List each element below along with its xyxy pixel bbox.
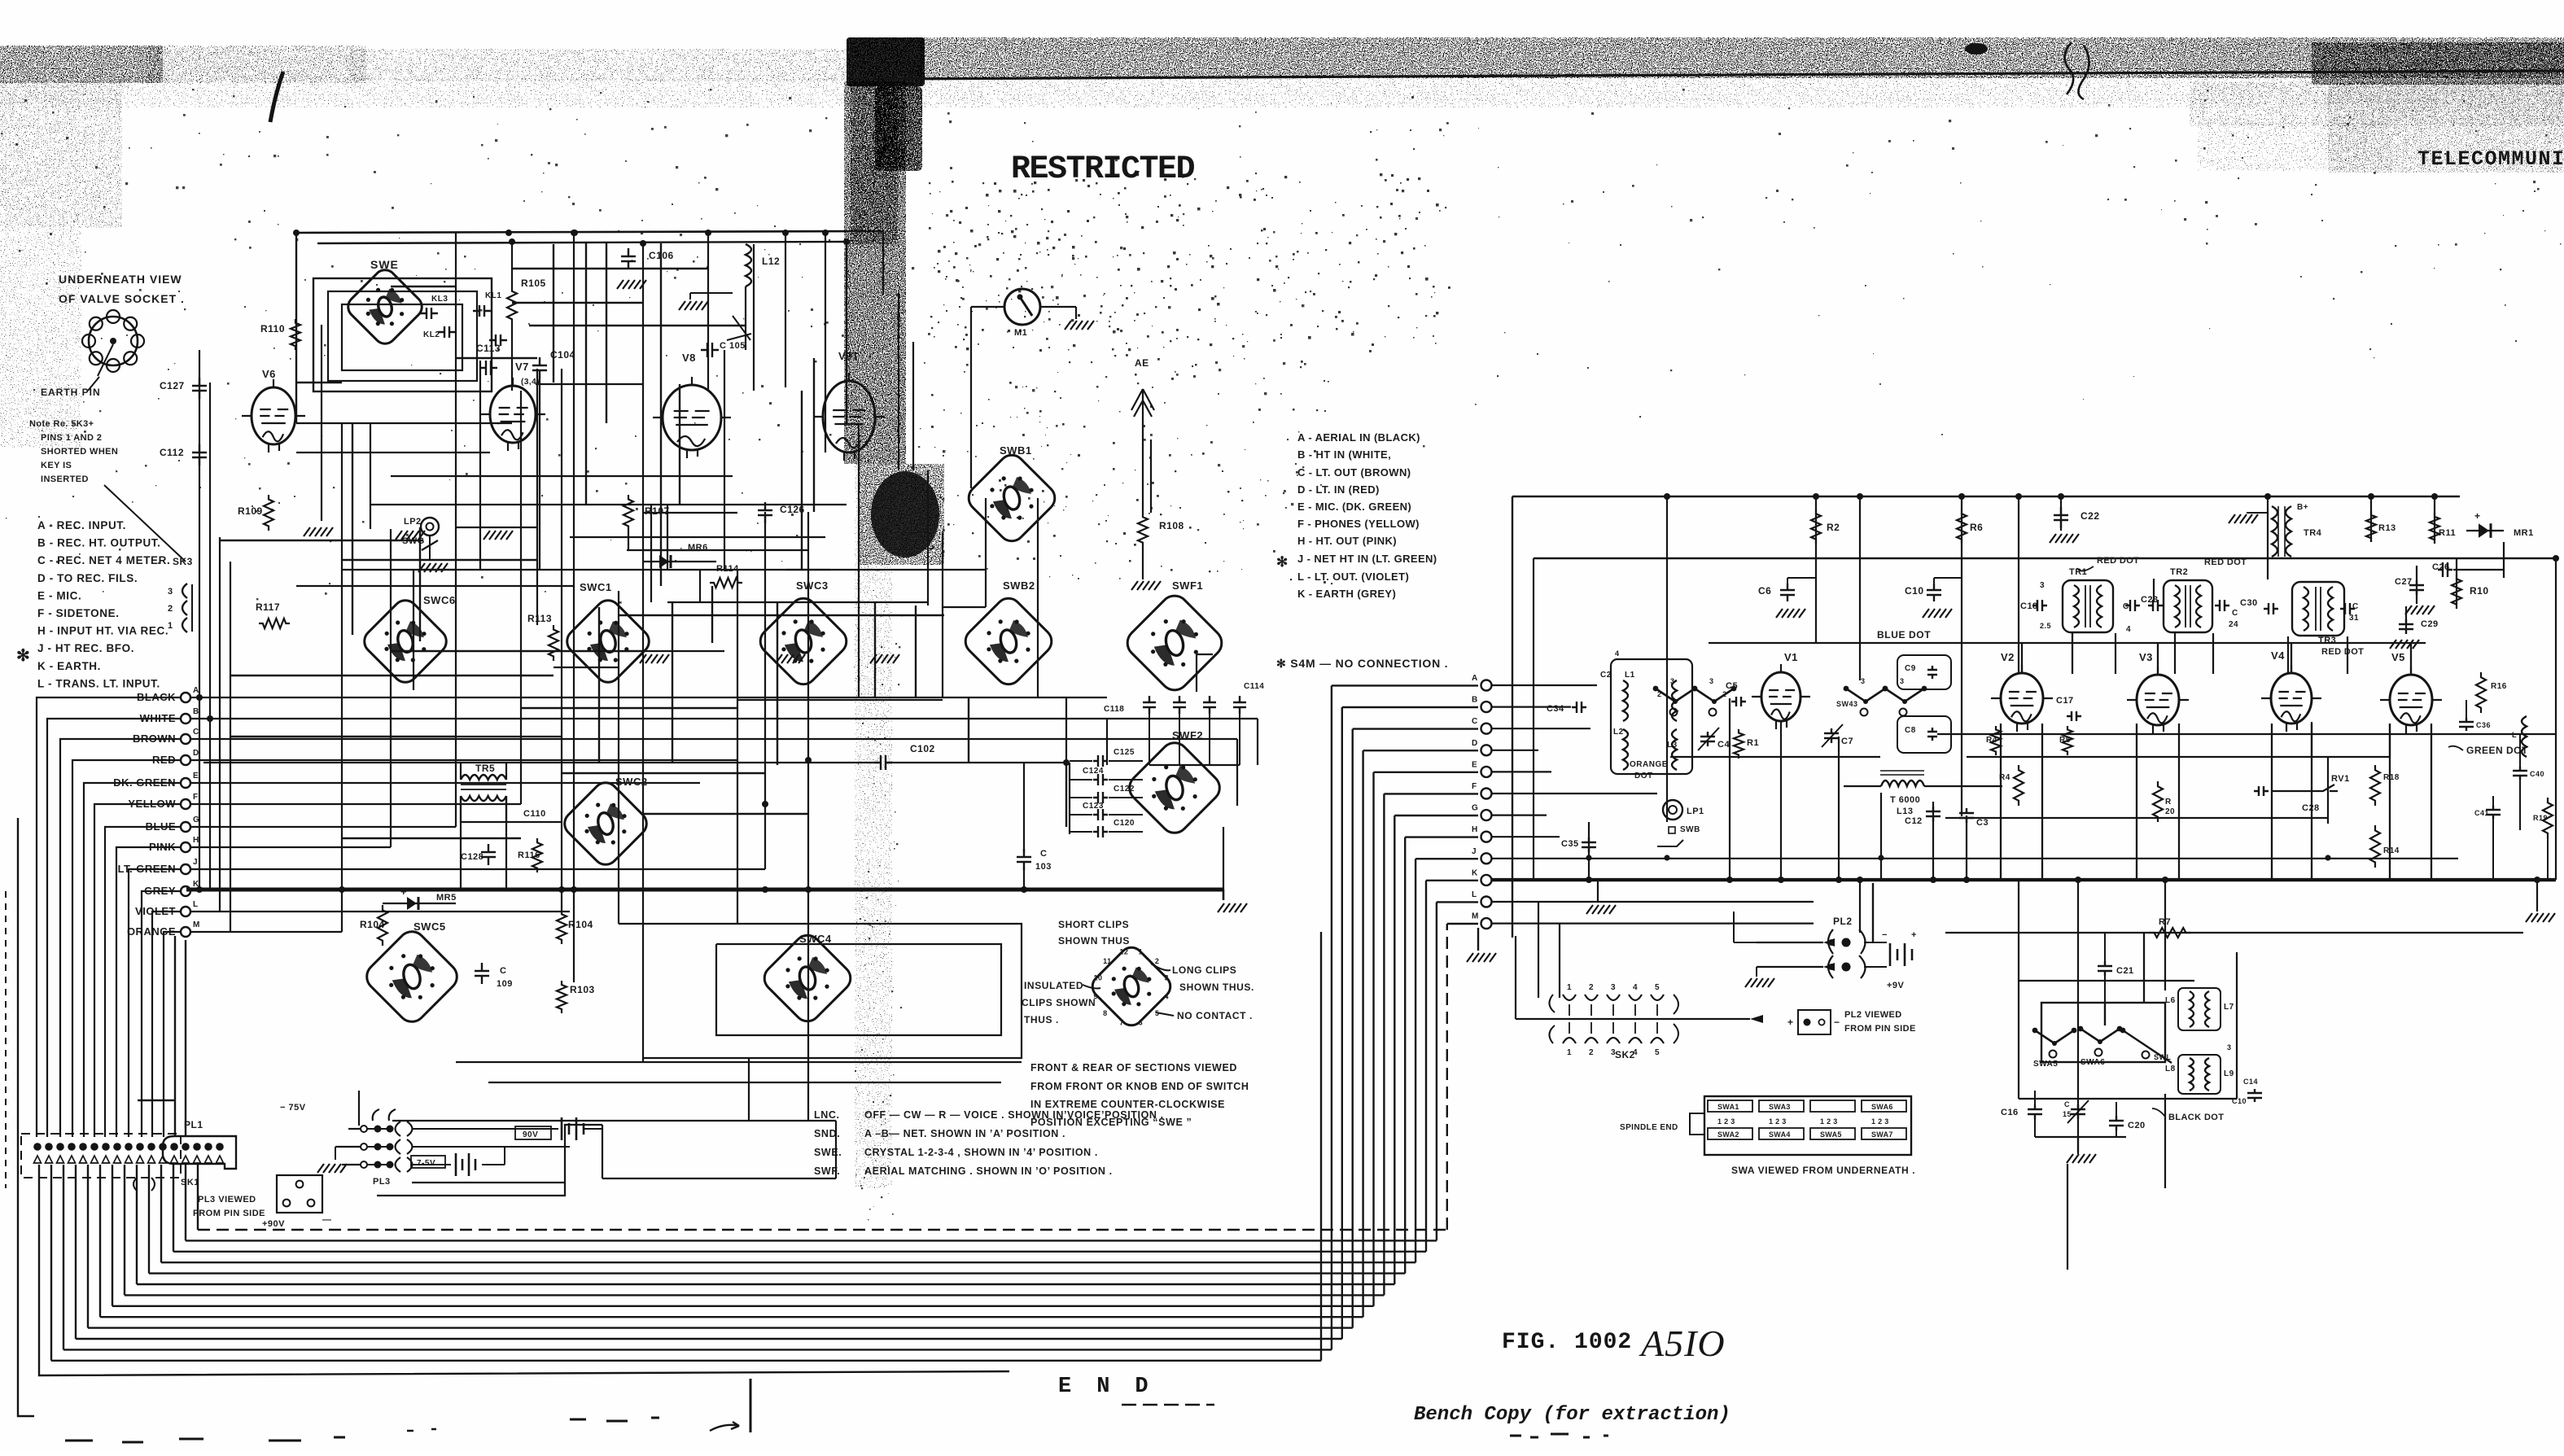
svg-text:−: − [1882, 930, 1888, 940]
svg-text:T 6000: T 6000 [1890, 795, 1920, 805]
svg-text:LONG CLIPS: LONG CLIPS [1172, 964, 1236, 976]
svg-text:H: H [193, 836, 199, 845]
svg-text:SK3: SK3 [173, 556, 193, 567]
svg-text:C - LT. OUT (BROWN): C - LT. OUT (BROWN) [1297, 466, 1411, 479]
svg-text:C29: C29 [2421, 619, 2439, 629]
svg-text:G: G [1472, 804, 1478, 813]
svg-text:R11: R11 [2439, 528, 2456, 538]
svg-text:SWB: SWB [1680, 825, 1700, 834]
svg-text:TR3: TR3 [2318, 636, 2336, 645]
svg-text:C30: C30 [2240, 598, 2258, 608]
svg-text:M: M [1472, 912, 1479, 921]
svg-text:SWB2: SWB2 [1003, 579, 1035, 592]
svg-text:LP2: LP2 [404, 517, 422, 527]
svg-text:2: 2 [168, 604, 173, 614]
svg-text:D: D [193, 749, 199, 758]
svg-text:C: C [1040, 849, 1047, 859]
svg-text:2: 2 [1589, 983, 1594, 992]
svg-text:V4: V4 [2271, 649, 2285, 662]
svg-text:SWC2: SWC2 [615, 776, 648, 788]
svg-text:J - HT REC. BFO.: J - HT REC. BFO. [37, 642, 134, 654]
svg-text:7: 7 [1119, 1018, 1124, 1026]
svg-text:31: 31 [2349, 614, 2359, 623]
svg-text:L12: L12 [762, 256, 780, 267]
svg-text:1: 1 [1567, 1048, 1572, 1057]
svg-text:DOT: DOT [1634, 772, 1653, 780]
svg-text:R6: R6 [1970, 522, 1983, 533]
svg-text:F: F [193, 793, 199, 802]
svg-text:1: 1 [1139, 948, 1144, 956]
svg-text:C: C [2232, 609, 2238, 618]
svg-text:MR5: MR5 [436, 893, 457, 903]
svg-text:5: 5 [1655, 983, 1660, 992]
svg-text:B - REC. HT. OUTPUT.: B - REC. HT. OUTPUT. [37, 537, 161, 549]
svg-text:L7: L7 [2224, 1003, 2234, 1012]
svg-text:+: + [400, 885, 407, 898]
svg-text:C34: C34 [1547, 704, 1564, 714]
svg-text:MR6: MR6 [688, 543, 708, 553]
svg-text:C22: C22 [2081, 510, 2100, 522]
svg-text:3: 3 [168, 587, 173, 597]
svg-text:11: 11 [1103, 957, 1112, 965]
svg-text:3: 3 [1611, 983, 1616, 992]
svg-text:C4: C4 [1717, 740, 1730, 750]
svg-text:B: B [193, 707, 199, 716]
svg-text:C122: C122 [1114, 785, 1135, 794]
svg-text:− 75V: − 75V [280, 1103, 306, 1113]
svg-text:3: 3 [1164, 973, 1169, 982]
svg-text:F - SIDETONE.: F - SIDETONE. [37, 607, 120, 619]
svg-text:R16: R16 [2491, 682, 2507, 691]
svg-text:R108: R108 [1159, 520, 1184, 531]
svg-text:4: 4 [2126, 625, 2131, 634]
svg-text:+90V: +90V [262, 1219, 285, 1229]
svg-text:✻: ✻ [16, 647, 30, 665]
svg-text:SWA4: SWA4 [1769, 1130, 1791, 1139]
svg-text:SWC3: SWC3 [796, 579, 829, 592]
svg-text:OF VALVE SOCKET .: OF VALVE SOCKET . [59, 292, 185, 305]
svg-text:E - MIC. (DK. GREEN): E - MIC. (DK. GREEN) [1297, 501, 1411, 513]
svg-text:R114: R114 [716, 564, 739, 574]
svg-text:CRYSTAL 1-2-3-4 , SHOWN IN: CRYSTAL 1-2-3-4 , SHOWN IN ’4’ POSITION … [864, 1147, 1098, 1158]
svg-text:C35: C35 [1561, 839, 1579, 849]
svg-text:OFF — CW — R — VOICE . SHOWN: OFF — CW — R — VOICE . SHOWN IN’VOICE’PO… [864, 1109, 1164, 1121]
svg-text:PL3: PL3 [373, 1177, 391, 1187]
svg-text:KL3: KL3 [431, 295, 448, 304]
svg-text:E: E [193, 772, 199, 780]
svg-text:C: C [2352, 602, 2359, 611]
svg-text:L - LT. OUT. (VIOLET): L - LT. OUT. (VIOLET) [1297, 571, 1409, 583]
svg-text:E - MIC.: E - MIC. [37, 589, 81, 601]
svg-text:K: K [1472, 868, 1478, 877]
svg-text:2: 2 [1155, 957, 1160, 965]
svg-text:L6: L6 [2165, 996, 2176, 1005]
svg-text:FROM FRONT OR KNOB END OF SW: FROM FRONT OR KNOB END OF SWITCH [1030, 1081, 1249, 1092]
svg-text:PINS 1 AND 2: PINS 1 AND 2 [41, 433, 102, 443]
svg-text:R2: R2 [1827, 522, 1840, 533]
svg-text:C20: C20 [2128, 1121, 2146, 1130]
svg-text:D - TO REC. FILS.: D - TO REC. FILS. [37, 572, 138, 584]
svg-text:4: 4 [1633, 983, 1638, 992]
svg-text:C126: C126 [780, 504, 805, 515]
svg-text:1 2 3: 1 2 3 [1820, 1117, 1838, 1126]
svg-text:RED DOT: RED DOT [2321, 647, 2364, 657]
svg-text:BLUE DOT: BLUE DOT [1877, 629, 1931, 641]
svg-text:TR4: TR4 [2304, 528, 2322, 538]
svg-text:TR5: TR5 [475, 763, 495, 774]
svg-text:F - PHONES (YELLOW): F - PHONES (YELLOW) [1297, 518, 1420, 530]
svg-text:IN EXTREME COUNTER-CLOCKWISE: IN EXTREME COUNTER-CLOCKWISE [1030, 1099, 1225, 1110]
svg-text:A - AERIAL IN (BLACK): A - AERIAL IN (BLACK) [1297, 431, 1420, 444]
svg-text:✻ S4M — NO CONNECTION .: ✻ S4M — NO CONNECTION . [1276, 657, 1448, 670]
svg-text:V9T: V9T [838, 350, 859, 362]
svg-text:INSERTED: INSERTED [41, 474, 89, 484]
svg-text:R103: R103 [570, 984, 595, 995]
svg-text:FROM PIN SIDE: FROM PIN SIDE [193, 1209, 265, 1218]
svg-text:A - REC. INPUT.: A - REC. INPUT. [37, 519, 126, 531]
svg-text:24: 24 [2229, 620, 2238, 629]
svg-text:V5: V5 [2391, 651, 2405, 663]
svg-text:C14: C14 [2243, 1078, 2258, 1086]
svg-text:C7: C7 [1841, 737, 1853, 746]
svg-text:E: E [1472, 760, 1477, 769]
svg-text:V1: V1 [1784, 651, 1798, 663]
svg-text:R104: R104 [360, 919, 385, 930]
svg-text:J: J [193, 858, 198, 867]
svg-text:H - INPUT HT. VIA REC.: H - INPUT HT. VIA REC. [37, 625, 168, 637]
svg-text:R104: R104 [568, 919, 593, 930]
svg-text:+: + [2474, 510, 2481, 522]
svg-text:3: 3 [1861, 677, 1866, 685]
svg-text:RED DOT: RED DOT [2204, 557, 2247, 567]
svg-text:SWA6: SWA6 [1871, 1103, 1893, 1111]
svg-text:TR2: TR2 [2170, 567, 2188, 577]
svg-text:UNDERNEATH VIEW: UNDERNEATH VIEW [59, 273, 182, 286]
svg-text:7-5V: 7-5V [417, 1159, 435, 1168]
svg-text:L1: L1 [1625, 671, 1635, 680]
svg-text:SWA5: SWA5 [1820, 1130, 1842, 1139]
svg-text:C2: C2 [1600, 671, 1612, 680]
svg-text:V2: V2 [2001, 651, 2015, 663]
svg-text:L13: L13 [1897, 807, 1913, 816]
svg-text:1: 1 [1567, 983, 1572, 992]
svg-text:C17: C17 [2056, 696, 2074, 706]
svg-text:3: 3 [1709, 677, 1714, 685]
svg-text:C: C [1472, 717, 1478, 726]
svg-text:3: 3 [2040, 581, 2045, 590]
svg-text:LNC.: LNC. [814, 1109, 840, 1121]
svg-text:R: R [2165, 798, 2172, 807]
svg-text:6: 6 [1139, 1018, 1144, 1026]
svg-text:4: 4 [1633, 1048, 1638, 1057]
svg-text:SWF1: SWF1 [1172, 579, 1203, 592]
svg-text:J - NET HT IN (LT. GREEN): J - NET HT IN (LT. GREEN) [1297, 553, 1437, 565]
svg-text:1 2 3: 1 2 3 [1717, 1117, 1735, 1126]
svg-text:R1: R1 [1747, 738, 1759, 748]
svg-text:FRONT & REAR OF SECTIONS VIEW: FRONT & REAR OF SECTIONS VIEWED [1030, 1062, 1237, 1073]
svg-text:A –B— NET. SHOWN IN ’A’ PO: A –B— NET. SHOWN IN ’A’ POSITION . [864, 1128, 1065, 1139]
svg-text:H: H [1472, 825, 1478, 834]
svg-text:KEY IS: KEY IS [41, 461, 72, 470]
svg-text:C110: C110 [523, 809, 546, 819]
svg-text:SWA7: SWA7 [1871, 1130, 1893, 1139]
svg-text:R105: R105 [521, 278, 546, 289]
svg-text:C: C [2123, 602, 2129, 611]
svg-text:F: F [1472, 782, 1477, 791]
svg-text:SK1: SK1 [181, 1178, 199, 1187]
svg-text:L3: L3 [1667, 741, 1678, 750]
svg-text:FIG. 1002: FIG. 1002 [1502, 1330, 1632, 1355]
svg-text:SWA3: SWA3 [1769, 1103, 1791, 1111]
svg-text:R117: R117 [256, 601, 280, 613]
svg-text:R14: R14 [2383, 846, 2400, 855]
svg-text:3: 3 [1611, 1048, 1616, 1057]
svg-text:C40: C40 [2530, 770, 2544, 778]
svg-text:V6: V6 [262, 368, 276, 380]
svg-text:C28: C28 [2302, 803, 2320, 813]
svg-text:END: END [1058, 1375, 1174, 1399]
svg-text:R113: R113 [527, 613, 552, 624]
svg-text:SHOWN THUS: SHOWN THUS [1058, 935, 1130, 947]
svg-text:PL2: PL2 [1833, 916, 1853, 927]
svg-text:C114: C114 [1244, 682, 1264, 691]
svg-text:C120: C120 [1114, 819, 1135, 828]
svg-text:V8: V8 [682, 352, 696, 364]
svg-text:C36: C36 [2476, 721, 2491, 729]
svg-text:C8: C8 [1905, 726, 1916, 735]
svg-text:KL2: KL2 [423, 330, 440, 339]
svg-text:R10: R10 [2470, 585, 2489, 597]
svg-text:R19: R19 [2533, 814, 2548, 822]
svg-text:SWC5: SWC5 [413, 920, 446, 933]
svg-text:R18: R18 [2383, 773, 2400, 782]
svg-text:2.5: 2.5 [2040, 622, 2051, 630]
svg-text:FROM PIN SIDE: FROM PIN SIDE [1844, 1024, 1916, 1034]
svg-text:AE: AE [1135, 357, 1149, 369]
svg-text:C102: C102 [910, 743, 935, 754]
svg-text:R109: R109 [238, 505, 263, 517]
svg-text:C41: C41 [2474, 809, 2489, 817]
svg-text:SWA2: SWA2 [1717, 1130, 1739, 1139]
svg-text:PL3 VIEWED: PL3 VIEWED [198, 1195, 256, 1205]
svg-text:Note Re. 5K3+: Note Re. 5K3+ [29, 419, 94, 429]
svg-text:—: — [322, 1215, 332, 1225]
svg-text:V7: V7 [515, 361, 529, 373]
svg-text:C118: C118 [1104, 705, 1124, 714]
svg-text:C9: C9 [1905, 664, 1916, 673]
svg-text:L2: L2 [1613, 728, 1624, 737]
svg-text:A5IO: A5IO [1639, 1323, 1726, 1364]
svg-text:INSULATED: INSULATED [1024, 980, 1083, 991]
svg-text:C10: C10 [1905, 585, 1924, 597]
svg-text:SWA VIEWED FROM UNDERNEATH: SWA VIEWED FROM UNDERNEATH . [1731, 1165, 1915, 1176]
svg-text:B+: B+ [2297, 503, 2308, 512]
svg-text:C - REC. NET 4 METER.: C - REC. NET 4 METER. [37, 554, 170, 566]
svg-text:K - EARTH.: K - EARTH. [37, 660, 101, 672]
svg-text:L: L [193, 900, 199, 909]
svg-text:SHORT CLIPS: SHORT CLIPS [1058, 919, 1129, 930]
svg-text:SW43: SW43 [1836, 700, 1858, 708]
svg-text:Bench Copy (for extraction): Bench Copy (for extraction) [1414, 1404, 1730, 1426]
svg-text:CLIPS SHOWN: CLIPS SHOWN [1022, 997, 1096, 1008]
svg-text:5: 5 [1655, 1048, 1660, 1057]
svg-text:2: 2 [1657, 690, 1662, 698]
svg-text:12: 12 [1119, 948, 1128, 956]
svg-text:+: + [1911, 930, 1917, 940]
svg-text:15: 15 [2063, 1110, 2072, 1118]
svg-text:GREEN DOT: GREEN DOT [2466, 745, 2528, 756]
svg-text:C12: C12 [1905, 816, 1923, 826]
svg-text:1: 1 [168, 621, 173, 631]
svg-text:L8: L8 [2165, 1065, 2176, 1073]
svg-text:B: B [1472, 696, 1478, 705]
svg-text:SWC1: SWC1 [580, 581, 612, 593]
svg-text:LP1: LP1 [1687, 807, 1704, 816]
svg-text:3: 3 [2227, 1043, 2232, 1052]
svg-text:3: 3 [1670, 677, 1675, 685]
svg-text:TELECOMMUNI: TELECOMMUNI [2417, 147, 2564, 171]
svg-text:R107: R107 [645, 505, 670, 517]
svg-text:C16: C16 [2001, 1108, 2019, 1117]
svg-text:C5: C5 [1726, 681, 1738, 691]
svg-text:C113: C113 [476, 343, 501, 354]
svg-text:SHOWN THUS.: SHOWN THUS. [1179, 982, 1254, 993]
svg-text:103: 103 [1035, 862, 1052, 872]
svg-text:NO CONTACT .: NO CONTACT . [1177, 1010, 1253, 1021]
svg-text:C128: C128 [461, 852, 483, 862]
svg-text:4: 4 [1164, 993, 1169, 1001]
svg-text:D - LT. IN (RED): D - LT. IN (RED) [1297, 483, 1380, 496]
svg-text:BLACK DOT: BLACK DOT [2168, 1113, 2224, 1122]
svg-text:C 105: C 105 [720, 341, 746, 351]
svg-text:1 2 3: 1 2 3 [1769, 1117, 1787, 1126]
svg-text:+: + [1787, 1017, 1794, 1028]
svg-text:H - HT. OUT (PINK): H - HT. OUT (PINK) [1297, 535, 1397, 547]
svg-text:M1: M1 [1014, 328, 1027, 338]
svg-text:10: 10 [1094, 973, 1103, 982]
svg-text:C6: C6 [1758, 585, 1771, 597]
svg-text:J: J [1472, 847, 1477, 856]
svg-text:C125: C125 [1114, 748, 1135, 757]
svg-text:L9: L9 [2224, 1069, 2234, 1078]
svg-text:L: L [2512, 731, 2517, 739]
svg-text:MR1: MR1 [2514, 528, 2534, 538]
svg-text:M: M [193, 920, 200, 929]
svg-text:+9V: +9V [1887, 981, 1905, 990]
svg-text:C23: C23 [2141, 595, 2159, 605]
svg-text:C3: C3 [1976, 818, 1989, 828]
svg-text:PL1: PL1 [184, 1119, 203, 1130]
svg-text:90V: 90V [523, 1130, 538, 1139]
svg-text:AERIAL MATCHING . SHOWN IN: AERIAL MATCHING . SHOWN IN ’O’ POSITION … [864, 1165, 1113, 1177]
svg-text:C: C [2064, 1100, 2070, 1108]
svg-text:SWL: SWL [2154, 1053, 2172, 1061]
svg-text:SWC6: SWC6 [423, 594, 456, 606]
svg-text:L: L [1472, 890, 1477, 899]
svg-text:C21: C21 [2116, 966, 2134, 976]
svg-text:RESTRICTED: RESTRICTED [1011, 151, 1195, 188]
svg-text:3: 3 [1900, 677, 1905, 685]
svg-text:C124: C124 [1083, 767, 1104, 776]
svg-text:K - EARTH (GREY): K - EARTH (GREY) [1297, 588, 1396, 600]
svg-text:SHORTED WHEN: SHORTED WHEN [41, 447, 118, 457]
svg-text:SPINDLE END: SPINDLE END [1620, 1123, 1678, 1132]
svg-text:SWF2: SWF2 [1172, 729, 1203, 741]
svg-text:1 2 3: 1 2 3 [1871, 1117, 1889, 1126]
svg-text:L - TRANS. LT. INPUT.: L - TRANS. LT. INPUT. [37, 677, 160, 689]
svg-text:RED DOT: RED DOT [2097, 556, 2139, 566]
svg-text:20: 20 [2165, 807, 2175, 816]
svg-text:R110: R110 [260, 323, 285, 334]
svg-text:A: A [193, 686, 199, 695]
svg-text:A: A [1472, 674, 1478, 683]
svg-text:C10: C10 [2232, 1097, 2247, 1105]
svg-text:SWA5: SWA5 [2033, 1060, 2058, 1069]
svg-text:C: C [193, 728, 199, 737]
svg-text:2: 2 [1722, 690, 1727, 698]
svg-text:PL2 VIEWED: PL2 VIEWED [1844, 1010, 1902, 1020]
svg-text:C123: C123 [1083, 802, 1104, 811]
svg-text:✻: ✻ [1276, 554, 1289, 570]
svg-text:C127: C127 [160, 380, 185, 391]
svg-text:R13: R13 [2378, 523, 2396, 533]
svg-text:SWE.: SWE. [814, 1147, 842, 1158]
svg-text:4: 4 [1615, 649, 1620, 658]
svg-text:−: − [1834, 1017, 1840, 1028]
svg-text:B - HT IN (WHITE,: B - HT IN (WHITE, [1297, 448, 1391, 461]
svg-text:C: C [500, 966, 506, 976]
svg-text:V3: V3 [2139, 651, 2153, 663]
svg-text:C112: C112 [160, 447, 184, 458]
svg-text:THUS .: THUS . [1024, 1014, 1059, 1025]
svg-text:D: D [1472, 739, 1478, 748]
svg-text:109: 109 [497, 979, 513, 989]
svg-text:EARTH PIN: EARTH PIN [41, 387, 101, 398]
svg-text:8: 8 [1103, 1009, 1108, 1017]
svg-text:2: 2 [1589, 1048, 1594, 1057]
svg-text:ORANGE: ORANGE [1630, 760, 1668, 769]
svg-text:RV1: RV1 [2331, 774, 2350, 784]
svg-text:SWA1: SWA1 [1717, 1103, 1739, 1111]
svg-text:KL1: KL1 [485, 291, 501, 300]
